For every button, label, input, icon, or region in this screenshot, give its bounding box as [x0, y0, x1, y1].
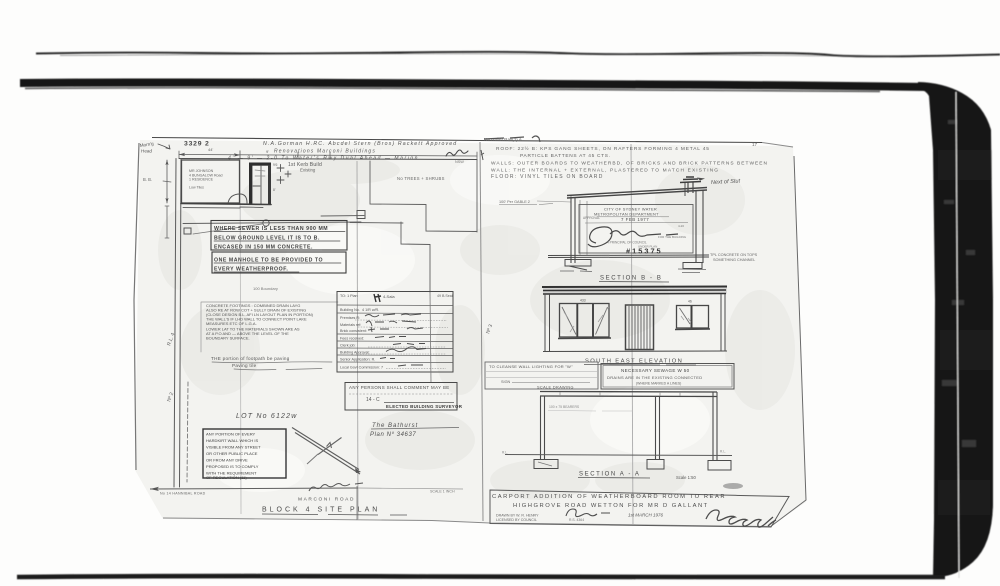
svg-text:4-Sala: 4-Sala — [383, 294, 395, 299]
svg-text:433: 433 — [580, 299, 586, 303]
svg-text:VISIBLE FROM ANY STREET: VISIBLE FROM ANY STREET — [206, 445, 261, 450]
svg-text:14 - C: 14 - C — [366, 397, 380, 403]
svg-text:Fees received:: Fees received: — [340, 337, 364, 341]
svg-text:17: 17 — [752, 142, 758, 147]
svg-text:N.A.Gorman H.RC. Abcdel Stern: N.A.Gorman H.RC. Abcdel Stern (Bros) Rac… — [263, 141, 457, 147]
svg-text:EVERY WEATHERPROOF.: EVERY WEATHERPROOF. — [214, 267, 288, 273]
svg-text:DRAWN BY W. R. HENRY: DRAWN BY W. R. HENRY — [496, 514, 539, 518]
svg-text:FOR THE BUILDING: FOR THE BUILDING — [658, 235, 687, 239]
svg-text:R.S. 4364: R.S. 4364 — [569, 518, 584, 522]
svg-text:Paving tile: Paving tile — [232, 363, 257, 368]
svg-text:Materials ref:: Materials ref: — [340, 323, 361, 327]
svg-text:PARTICLE BATTENS AT 45 CTS.: PARTICLE BATTENS AT 45 CTS. — [520, 153, 611, 159]
svg-text:Building No.: Building No. — [340, 308, 360, 312]
svg-text:SCALE DRAWING: SCALE DRAWING — [537, 386, 574, 390]
svg-text:Low Tiles: Low Tiles — [189, 186, 204, 190]
svg-text:R.L.: R.L. — [720, 450, 726, 454]
svg-text:Existing: Existing — [300, 168, 316, 173]
svg-text:3329 2: 3329 2 — [184, 141, 210, 148]
svg-text:ROOF: 22½ B: KPS GANG SHEE: ROOF: 22½ B: KPS GANG SHEETS, ON RAFTERS… — [496, 145, 710, 152]
svg-text:Renovations Marconi Building: Renovations Marconi Buildings — [274, 149, 376, 155]
svg-text:Premises R:: Premises R: — [340, 316, 360, 320]
svg-text:No TREES + SHRUBS: No TREES + SHRUBS — [397, 176, 445, 181]
svg-text:Scale 1:50: Scale 1:50 — [676, 475, 696, 480]
svg-text:ELECTED BUILDING SURVEYOR: ELECTED BUILDING SURVEYOR — [386, 404, 463, 409]
svg-text:Plan Nº 34637: Plan Nº 34637 — [370, 431, 416, 438]
svg-text:1st MARCH 1976: 1st MARCH 1976 — [628, 513, 664, 518]
svg-text:SCALE 1 INCH: SCALE 1 INCH — [430, 490, 455, 494]
svg-text:THE portion of footpath be: THE portion of footpath be paving — [211, 356, 290, 361]
svg-text:PROPOSED IS TO COMPLY: PROPOSED IS TO COMPLY — [206, 464, 259, 469]
svg-text:No 14 HANNIBAL ROAD: No 14 HANNIBAL ROAD — [160, 492, 206, 496]
svg-text:BOUNDARY SURFACE.: BOUNDARY SURFACE. — [206, 336, 250, 341]
svg-text:7 FEB 1977: 7 FEB 1977 — [621, 217, 649, 222]
svg-text:LOT No 6122w: LOT No 6122w — [236, 413, 297, 420]
svg-text:Local Govt Commission: 7: Local Govt Commission: 7 — [340, 366, 383, 370]
svg-text:WALL: THE INTERNAL + EXTER: WALL: THE INTERNAL + EXTERNAL, PLASTERED… — [491, 168, 719, 174]
svg-text:R.L.: R.L. — [502, 451, 508, 455]
svg-text:MARCONI ROAD: MARCONI ROAD — [298, 497, 355, 503]
svg-text:TPL CONCRETE ON TOPS: TPL CONCRETE ON TOPS — [710, 253, 758, 257]
svg-text:BLOCK 4 SITE PLAN: BLOCK 4 SITE PLAN — [262, 507, 380, 514]
svg-text:NSW: NSW — [455, 160, 464, 164]
svg-text:100 x 75 BEARERS: 100 x 75 BEARERS — [549, 405, 580, 409]
svg-text:ONE MANHOLE TO BE PROVIDED TO: ONE MANHOLE TO BE PROVIDED TO — [214, 258, 323, 264]
svg-text:#15375: #15375 — [626, 247, 663, 256]
svg-text:8': 8' — [273, 188, 276, 192]
svg-text:B. B.: B. B. — [143, 177, 152, 182]
svg-text:100' Per GABLE 2: 100' Per GABLE 2 — [499, 200, 530, 204]
svg-text:ANY PERSONS SHALL COMMENT: ANY PERSONS SHALL COMMENT MAY BE — [349, 385, 450, 390]
svg-text:BELOW GROUND LEVEL IT IS TO B.: BELOW GROUND LEVEL IT IS TO B. — [214, 236, 320, 242]
svg-text:9': 9' — [266, 149, 269, 154]
svg-text:WALLS: OUTER BOARDS TO WEA: WALLS: OUTER BOARDS TO WEATHERBD, OF BRI… — [491, 161, 768, 167]
svg-text:Senior Application: R.: Senior Application: R. — [340, 358, 375, 362]
svg-text:METROPOLITAN DEPARTMENT: METROPOLITAN DEPARTMENT — [594, 212, 659, 217]
svg-text:ANY PORTION OF EVERY: ANY PORTION OF EVERY — [206, 432, 256, 437]
svg-text:Head: Head — [141, 149, 152, 154]
svg-text:44': 44' — [208, 147, 213, 152]
svg-text:Clerk job:: Clerk job: — [340, 344, 356, 348]
svg-text:4-20: 4-20 — [678, 224, 684, 228]
svg-text:TO: 1 Plan: TO: 1 Plan — [340, 294, 358, 298]
svg-text:SECTION B - B: SECTION B - B — [600, 276, 662, 282]
svg-text:FLOOR: VINYL TILES ON BOAR: FLOOR: VINYL TILES ON BOARD — [491, 174, 604, 180]
svg-text:9'6: 9'6 — [273, 163, 278, 167]
svg-text:1 RESIDENCE: 1 RESIDENCE — [189, 178, 214, 182]
svg-text:WHERE SEWER IS LESS THAN 900 M: WHERE SEWER IS LESS THAN 900 MM — [214, 226, 328, 232]
svg-text:SIGN: SIGN — [501, 380, 511, 384]
svg-text:4 1/R w/R.: 4 1/R w/R. — [362, 308, 379, 312]
svg-text:SOMETHING CHANNEL: SOMETHING CHANNEL — [713, 258, 755, 262]
svg-text:46: 46 — [688, 300, 692, 304]
svg-text:100 Boundary: 100 Boundary — [253, 286, 278, 291]
svg-text:DRAINS ARE IN THE EXISTING: DRAINS ARE IN THE EXISTING CONNECTED — [607, 375, 702, 380]
svg-text:CARPORT ADDITION OF WEATHER: CARPORT ADDITION OF WEATHERBOARD ROOM TO… — [492, 494, 726, 500]
svg-text:OF REGULATION (11): OF REGULATION (11) — [206, 475, 247, 480]
svg-text:HIGHGROVE ROAD WETTON FOR: HIGHGROVE ROAD WETTON FOR MR D GALLANT — [513, 503, 709, 509]
svg-text:APPROVAL: APPROVAL — [583, 216, 600, 220]
svg-text:OR FROM ANY DRIVE: OR FROM ANY DRIVE — [206, 458, 248, 463]
svg-text:SECTION A - A: SECTION A - A — [579, 472, 640, 478]
svg-text:MEASURES ETC OF L.G.A.: MEASURES ETC OF L.G.A. — [206, 321, 257, 326]
svg-text:HARDKIRT WALL WHICH IS: HARDKIRT WALL WHICH IS — [206, 438, 258, 443]
svg-text:MR JOHNSON: MR JOHNSON — [189, 169, 214, 173]
svg-text:TO CLEANSE WALL LIGHTING F: TO CLEANSE WALL LIGHTING FOR "W" — [489, 364, 573, 369]
svg-text:ENCASED IN 150 MM CONCRETE.: ENCASED IN 150 MM CONCRETE. — [214, 245, 313, 251]
svg-text:Brick consistent:: Brick consistent: — [340, 329, 367, 333]
svg-text:49 B.Seal: 49 B.Seal — [437, 294, 453, 298]
svg-text:(WHERE MARKED A LINES): (WHERE MARKED A LINES) — [636, 382, 681, 386]
svg-text:NECESSARY SEWAGE W 50: NECESSARY SEWAGE W 50 — [621, 368, 690, 373]
svg-text:Building Approval:: Building Approval: — [340, 351, 370, 355]
svg-text:OR OTHER PUBLIC PLACE: OR OTHER PUBLIC PLACE — [206, 451, 258, 456]
svg-text:LICENSED BY COUNCIL: LICENSED BY COUNCIL — [496, 518, 537, 522]
